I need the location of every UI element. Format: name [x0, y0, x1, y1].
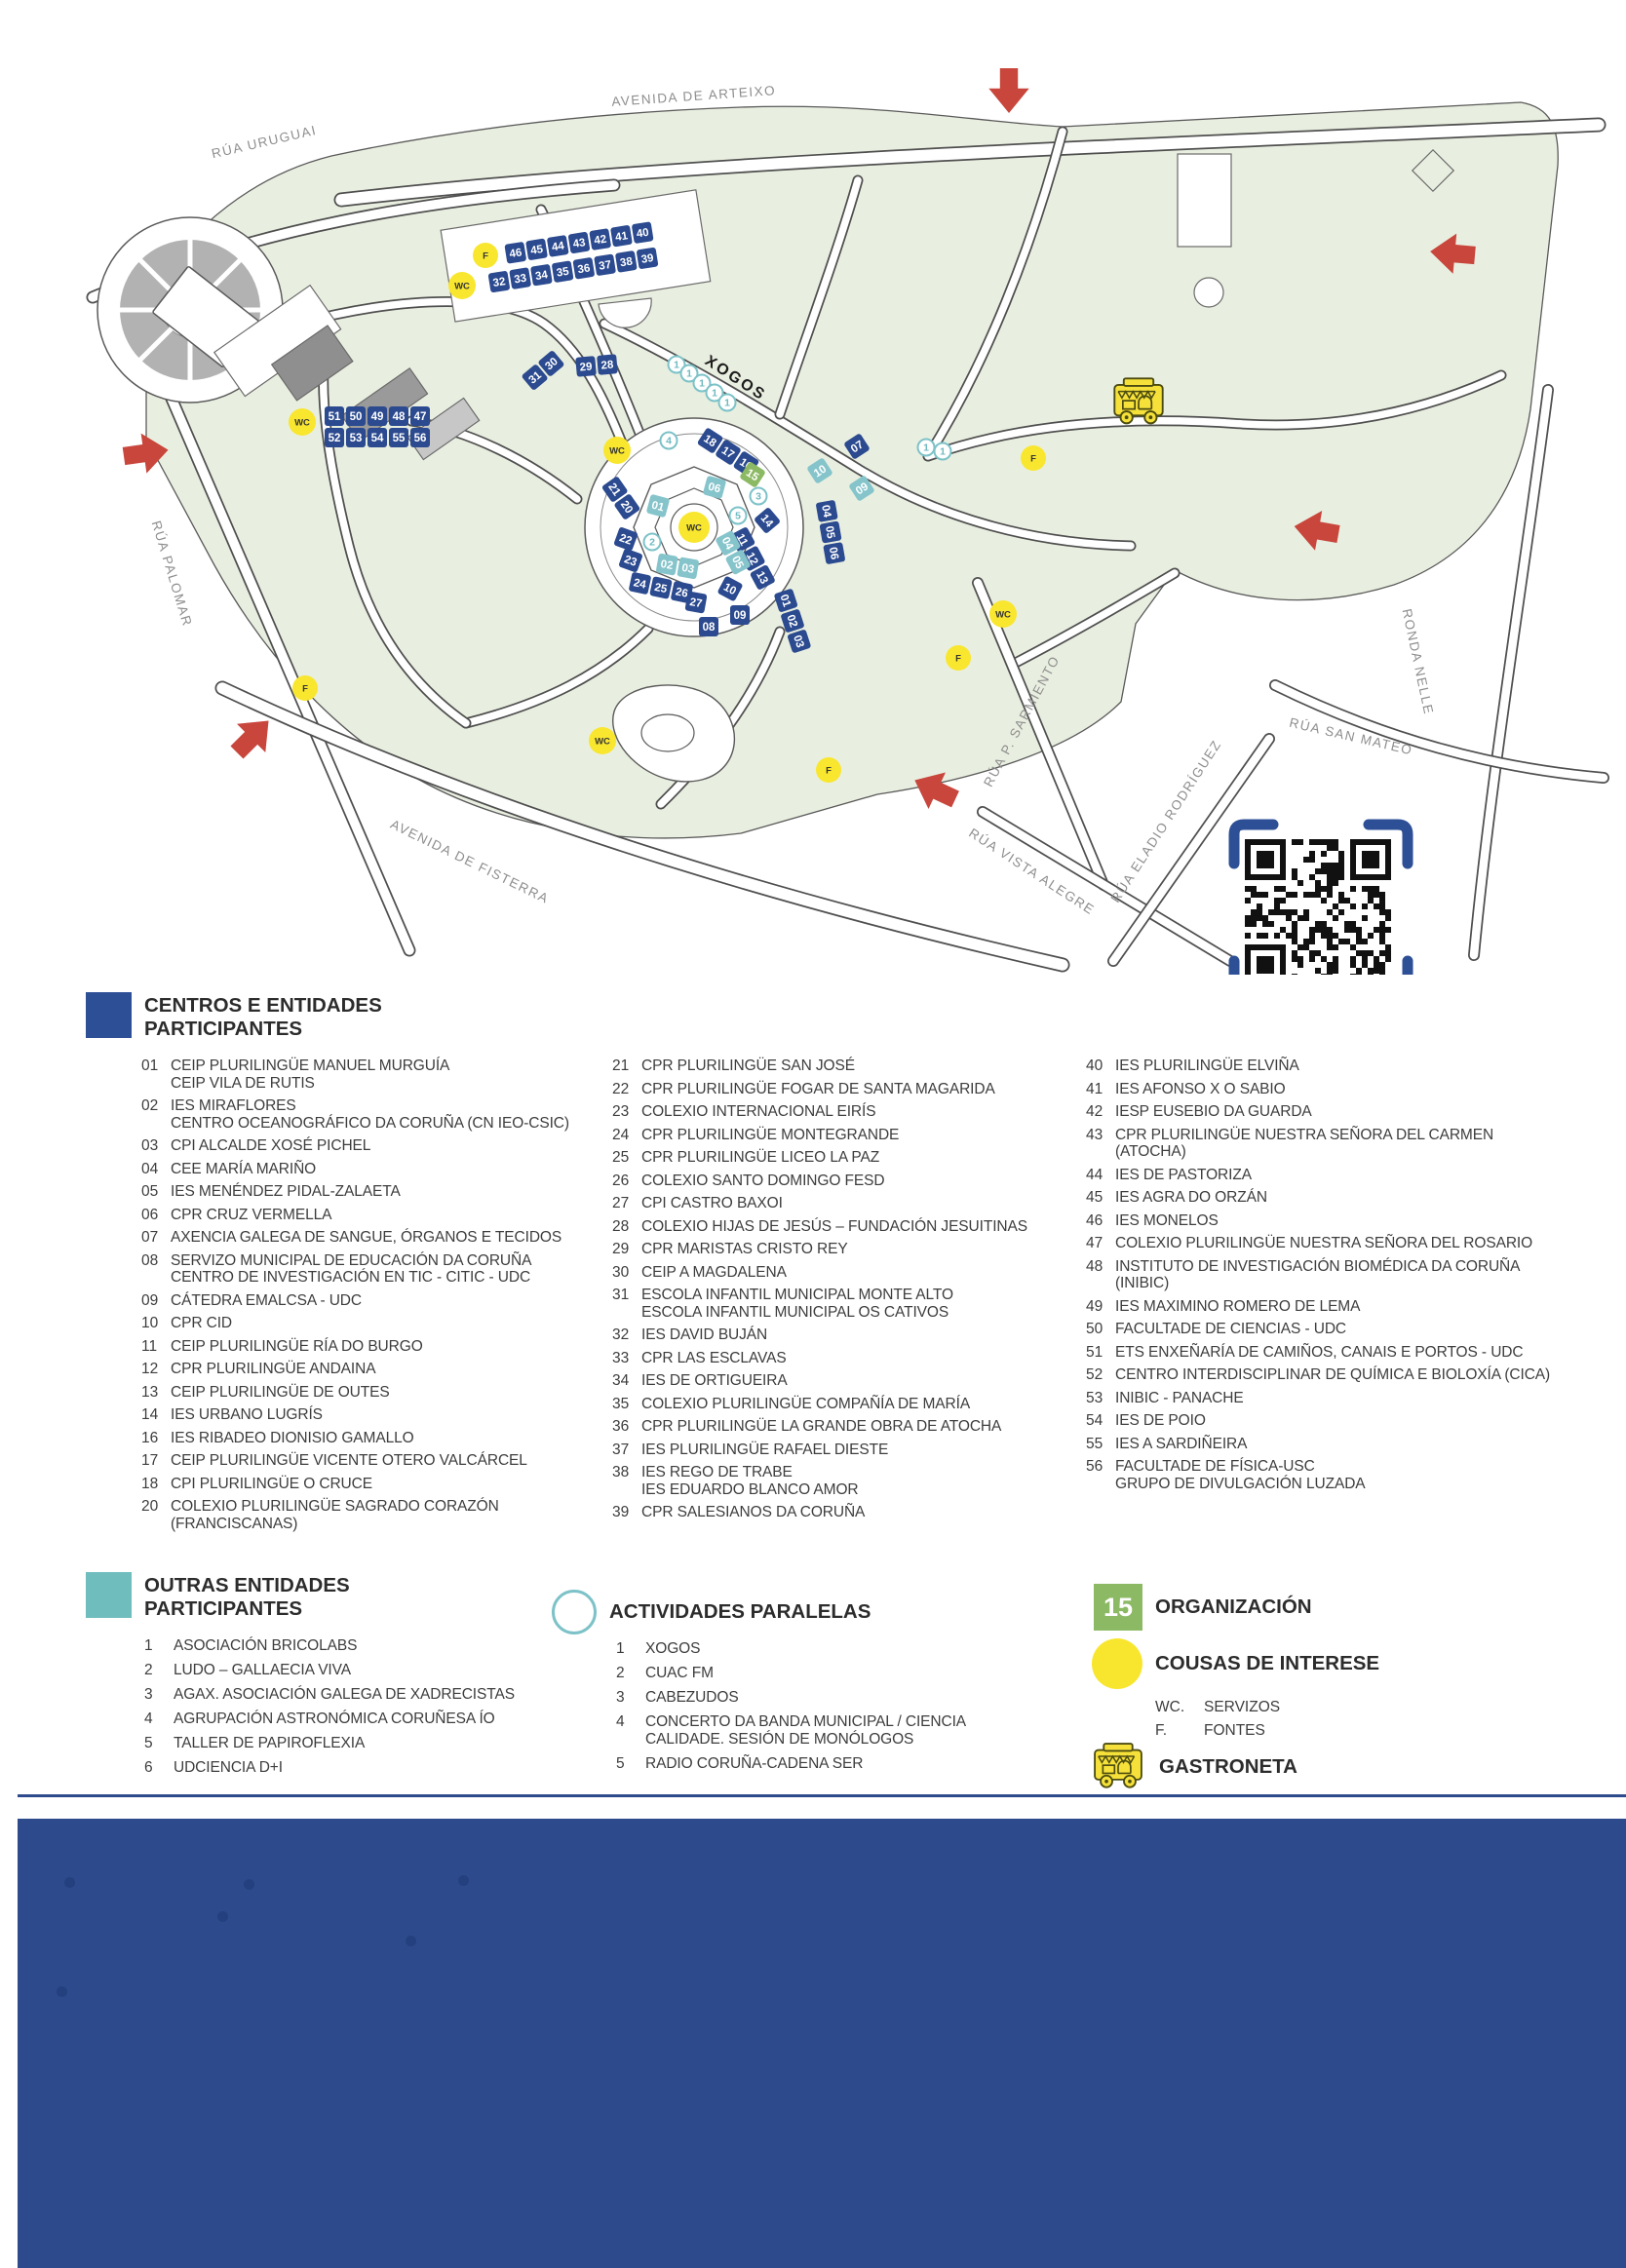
legend-item-number: 01	[141, 1057, 171, 1092]
legend-item-line: IES DAVID BUJÁN	[641, 1326, 767, 1344]
qr-module	[1292, 974, 1297, 975]
qr-module	[1385, 927, 1391, 933]
legend-item-text: CEIP PLURILINGÜE VICENTE OTERO VALCÁRCEL	[171, 1452, 527, 1470]
legend-item-text: CEIP PLURILINGÜE MANUEL MURGUÍACEIP VILA…	[171, 1057, 449, 1092]
legend-item-line: IES EDUARDO BLANCO AMOR	[641, 1481, 859, 1499]
qr-module	[1245, 921, 1251, 927]
legend-item-number: 45	[1086, 1189, 1115, 1207]
interest-label: WC	[609, 446, 625, 457]
legend-item-number: 33	[612, 1350, 641, 1367]
activity-number: 1	[686, 368, 692, 380]
qr-module	[1338, 898, 1344, 903]
activity-number: 1	[724, 398, 730, 409]
legend-item: 14IES URBANO LUGRÍS	[141, 1406, 609, 1424]
legend-item: 46IES MONELOS	[1086, 1212, 1617, 1230]
map-marker-number: 28	[600, 359, 614, 371]
legend-item-number: 5	[144, 1735, 174, 1752]
legend-item: 06CPR CRUZ VERMELLA	[141, 1207, 609, 1224]
cousas-f-label: FONTES	[1204, 1719, 1265, 1743]
qr-module	[1274, 933, 1280, 939]
legend-item-line: CÁTEDRA EMALCSA - UDC	[171, 1292, 362, 1310]
legend-item-number: 36	[612, 1418, 641, 1436]
activity-number: 2	[649, 537, 655, 549]
qr-module	[1344, 921, 1350, 927]
legend-item-line: COLEXIO SANTO DOMINGO FESD	[641, 1172, 884, 1190]
qr-module	[1280, 909, 1286, 915]
legend-item-number: 3	[144, 1686, 174, 1704]
legend-item: 25CPR PLURILINGÜE LICEO LA PAZ	[612, 1149, 1085, 1167]
qr-module	[1333, 845, 1338, 851]
qr-module	[1309, 892, 1315, 898]
legend-item-text: FACULTADE DE FÍSICA-USCGRUPO DE DIVULGAC…	[1115, 1458, 1366, 1492]
qr-module	[1315, 839, 1321, 845]
legend-item: 54IES DE POIO	[1086, 1412, 1617, 1430]
truck-roof	[1103, 1744, 1132, 1750]
map-marker-number: 45	[529, 244, 544, 257]
legend-item-text: CPR CRUZ VERMELLA	[171, 1207, 331, 1224]
legend-item-number: 2	[616, 1665, 645, 1682]
qr-module	[1333, 968, 1338, 974]
street-label: RÚA PALOMAR	[149, 519, 195, 628]
legend-item-line: IES MIRAFLORES	[171, 1097, 569, 1115]
street-label: AVENIDA DE FISTERRA	[388, 817, 551, 906]
qr-module	[1327, 939, 1333, 944]
legend-item-number: 21	[612, 1057, 641, 1075]
map-marker-number: 38	[619, 255, 634, 269]
legend-item-text: CONCERTO DA BANDA MUNICIPAL / CIENCIACAL…	[645, 1713, 966, 1748]
logo-dot	[458, 1875, 469, 1886]
interest-label: WC	[294, 418, 310, 429]
activity-ring-marker: 2	[644, 534, 661, 551]
qr-module	[1303, 892, 1309, 898]
qr-module	[1338, 892, 1344, 898]
legend-item-number: 37	[612, 1442, 641, 1459]
map-marker-number: 08	[703, 622, 716, 634]
qr-module	[1251, 921, 1257, 927]
qr-module	[1379, 898, 1385, 903]
qr-module	[1257, 933, 1262, 939]
legend-item-line: CPR CRUZ VERMELLA	[171, 1207, 331, 1224]
legend-item: 29CPR MARISTAS CRISTO REY	[612, 1241, 1085, 1258]
footer-band: DCR '23 06.05.23 11-19h Plano situación …	[18, 1819, 1626, 2268]
food-truck-icon	[1090, 1743, 1146, 1791]
legend-item: 47COLEXIO PLURILINGÜE NUESTRA SEÑORA DEL…	[1086, 1235, 1617, 1252]
interest-label: WC	[595, 737, 610, 748]
qr-module	[1274, 886, 1280, 892]
legend-item-line: CPR PLURILINGÜE LICEO LA PAZ	[641, 1149, 879, 1167]
map-marker-number: 03	[680, 562, 695, 576]
legend-item-text: COLEXIO HIJAS DE JESÚS – FUNDACIÓN JESUI…	[641, 1218, 1027, 1236]
legend-item-number: 1	[616, 1640, 645, 1658]
legend-item-line: COLEXIO INTERNACIONAL EIRÍS	[641, 1103, 875, 1121]
qr-module	[1321, 863, 1327, 868]
actividades-title: ACTIVIDADES PARALELAS	[609, 1600, 871, 1624]
legend-item: 51ETS ENXEÑARÍA DE CAMIÑOS, CANAIS E POR…	[1086, 1344, 1617, 1362]
legend-item: 03CPI ALCALDE XOSÉ PICHEL	[141, 1137, 609, 1155]
legend-item-number: 02	[141, 1097, 171, 1132]
legend-item-text: CPR PLURILINGÜE LICEO LA PAZ	[641, 1149, 879, 1167]
legend-item-line: IES REGO DE TRABE	[641, 1464, 859, 1481]
legend-item-number: 10	[141, 1315, 171, 1332]
legend-item: 39CPR SALESIANOS DA CORUÑA	[612, 1504, 1085, 1521]
qr-module	[1368, 898, 1374, 903]
qr-module	[1338, 857, 1344, 863]
qr-module	[1362, 915, 1368, 921]
legend-item-number: 50	[1086, 1321, 1115, 1338]
qr-module	[1257, 892, 1262, 898]
logo-dot	[406, 1936, 416, 1946]
legend-item: 30CEIP A MAGDALENA	[612, 1264, 1085, 1282]
legend-item-line: INIBIC - PANACHE	[1115, 1390, 1244, 1407]
qr-module	[1344, 927, 1350, 933]
qr-module	[1280, 886, 1286, 892]
qr-module	[1257, 903, 1262, 909]
map-marker-number: 40	[636, 227, 650, 241]
entrance-arrow-icon	[988, 68, 1028, 113]
legend-item-text: CEIP PLURILINGÜE DE OUTES	[171, 1384, 390, 1402]
actividades-list: 1XOGOS2CUAC FM3CABEZUDOS4CONCERTO DA BAN…	[616, 1640, 1045, 1780]
legend-item-line: CPR LAS ESCLAVAS	[641, 1350, 787, 1367]
legend-item-line: XOGOS	[645, 1640, 700, 1658]
qr-module	[1327, 874, 1333, 880]
legend-item: 34IES DE ORTIGUEIRA	[612, 1372, 1085, 1390]
logo-dot	[57, 1986, 67, 1997]
qr-module	[1257, 909, 1262, 915]
qr-module	[1309, 839, 1315, 845]
qr-module	[1315, 886, 1321, 892]
legend-item-text: CPI PLURILINGÜE O CRUCE	[171, 1476, 372, 1493]
legend-item-number: 13	[141, 1384, 171, 1402]
legend-item-line: TALLER DE PAPIROFLEXIA	[174, 1735, 365, 1752]
qr-module	[1251, 892, 1257, 898]
legend-item-number: 56	[1086, 1458, 1115, 1492]
qr-module	[1321, 851, 1327, 857]
qr-module	[1286, 915, 1292, 921]
qr-module	[1292, 956, 1297, 962]
qr-module	[1292, 939, 1297, 944]
qr-module	[1374, 927, 1379, 933]
legend-item-number: 39	[612, 1504, 641, 1521]
legend-item: 35COLEXIO PLURILINGÜE COMPAÑÍA DE MARÍA	[612, 1396, 1085, 1413]
qr-module	[1257, 915, 1262, 921]
interest-point: WC	[989, 600, 1017, 628]
legend-item-text: CPR PLURILINGÜE NUESTRA SEÑORA DEL CARME…	[1115, 1127, 1493, 1161]
legend-item: 40IES PLURILINGÜE ELVIÑA	[1086, 1057, 1617, 1075]
map-marker-number: 02	[660, 558, 675, 572]
legend-item-number: 35	[612, 1396, 641, 1413]
qr-module	[1262, 933, 1268, 939]
legend-item-line: FACULTADE DE FÍSICA-USC	[1115, 1458, 1366, 1476]
qr-module	[1321, 839, 1327, 845]
legend-item-text: IES DE POIO	[1115, 1412, 1206, 1430]
legend-item-line: IES PLURILINGÜE ELVIÑA	[1115, 1057, 1299, 1075]
qr-module	[1350, 956, 1356, 962]
activity-ring-marker: 4	[661, 433, 677, 449]
map-marker-number: 56	[414, 433, 427, 444]
qr-module	[1251, 909, 1257, 915]
centros-header: CENTROS E ENTIDADES PARTICIPANTES	[86, 992, 382, 1041]
interest-label: F	[955, 654, 961, 665]
qr-module	[1315, 892, 1321, 898]
legend-item-line: ESCOLA INFANTIL MUNICIPAL MONTE ALTO	[641, 1287, 953, 1304]
legend-item: 13CEIP PLURILINGÜE DE OUTES	[141, 1384, 609, 1402]
qr-module	[1379, 909, 1385, 915]
gastroneta-legend-icon	[1095, 1744, 1142, 1787]
qr-module	[1315, 927, 1321, 933]
legend-item: 05IES MENÉNDEZ PIDAL-ZALAETA	[141, 1183, 609, 1201]
legend-item-number: 40	[1086, 1057, 1115, 1075]
legend-item-text: XOGOS	[645, 1640, 700, 1658]
legend-item-number: 22	[612, 1081, 641, 1098]
activity-number: 1	[699, 378, 705, 390]
legend-item-text: CABEZUDOS	[645, 1689, 739, 1707]
qr-module	[1374, 968, 1379, 974]
qr-module	[1286, 892, 1292, 898]
legend-item-number: 53	[1086, 1390, 1115, 1407]
qr-module	[1350, 962, 1356, 968]
centros-title-line2: PARTICIPANTES	[144, 1018, 382, 1041]
legend-item-number: 43	[1086, 1127, 1115, 1161]
qr-module	[1297, 915, 1303, 921]
interest-label: F	[483, 251, 488, 262]
qr-module	[1274, 909, 1280, 915]
map-marker-group: 09	[730, 605, 750, 625]
qr-module	[1362, 886, 1368, 892]
legend-item-line: IES DE PASTORIZA	[1115, 1167, 1252, 1184]
qr-module	[1344, 898, 1350, 903]
legend-item-line: ASOCIACIÓN BRICOLABS	[174, 1637, 357, 1655]
qr-module	[1333, 903, 1338, 909]
activity-ring-marker: 1	[935, 443, 951, 460]
qr-module	[1309, 851, 1315, 857]
qr-module	[1333, 933, 1338, 939]
legend-item-number: 26	[612, 1172, 641, 1190]
legend-item-number: 03	[141, 1137, 171, 1155]
legend-item-number: 46	[1086, 1212, 1115, 1230]
qr-module	[1350, 974, 1356, 975]
qr-module	[1379, 933, 1385, 939]
legend-item-line: CENTRO OCEANOGRÁFICO DA CORUÑA (CN IEO-C…	[171, 1115, 569, 1133]
qr-module	[1379, 950, 1385, 956]
legend-item-text: IES A SARDIÑEIRA	[1115, 1436, 1247, 1453]
legend-item-text: CENTRO INTERDISCIPLINAR DE QUÍMICA E BIO…	[1115, 1366, 1550, 1384]
map-marker-number: 48	[393, 411, 406, 423]
qr-module	[1309, 956, 1315, 962]
qr-module	[1303, 915, 1309, 921]
qr-module	[1297, 956, 1303, 962]
qr-module	[1327, 863, 1333, 868]
legend-item-text: LUDO – GALLAECIA VIVA	[174, 1662, 351, 1679]
qr-module	[1292, 921, 1297, 927]
qr-module	[1286, 933, 1292, 939]
legend-item: 41IES AFONSO X O SABIO	[1086, 1081, 1617, 1098]
legend-item-line: IES MONELOS	[1115, 1212, 1219, 1230]
legend-item-line: LUDO – GALLAECIA VIVA	[174, 1662, 351, 1679]
qr-module	[1292, 950, 1297, 956]
legend-item-line: AGAX. ASOCIACIÓN GALEGA DE XADRECISTAS	[174, 1686, 515, 1704]
qr-module	[1368, 968, 1374, 974]
legend-item: 27CPI CASTRO BAXOI	[612, 1195, 1085, 1212]
legend-item-text: COLEXIO INTERNACIONAL EIRÍS	[641, 1103, 875, 1121]
legend-item-number: 47	[1086, 1235, 1115, 1252]
map-marker-number: 49	[371, 411, 384, 423]
legend-item-number: 17	[141, 1452, 171, 1470]
legend-item: 2CUAC FM	[616, 1665, 1045, 1682]
legend-item: 21CPR PLURILINGÜE SAN JOSÉ	[612, 1057, 1085, 1075]
qr-module	[1333, 839, 1338, 845]
qr-module	[1309, 927, 1315, 933]
legend-item-number: 1	[144, 1637, 174, 1655]
legend-item-text: COLEXIO PLURILINGÜE SAGRADO CORAZÓN(FRAN…	[171, 1498, 499, 1532]
legend-item-text: IES AGRA DO ORZÁN	[1115, 1189, 1267, 1207]
qr-module	[1333, 874, 1338, 880]
truck-roof	[1124, 378, 1153, 386]
qr-module	[1315, 880, 1321, 886]
qr-module	[1315, 921, 1321, 927]
map-marker-number: 41	[614, 230, 629, 244]
legend-item-line: ESCOLA INFANTIL MUNICIPAL OS CATIVOS	[641, 1304, 953, 1322]
interest-point: F	[473, 243, 498, 268]
legend-item-line: CPI PLURILINGÜE O CRUCE	[171, 1476, 372, 1493]
legend-item: 17CEIP PLURILINGÜE VICENTE OTERO VALCÁRC…	[141, 1452, 609, 1470]
legend-item: 3AGAX. ASOCIACIÓN GALEGA DE XADRECISTAS	[144, 1686, 563, 1704]
qr-module	[1315, 868, 1321, 874]
legend-item-text: ESCOLA INFANTIL MUNICIPAL MONTE ALTOESCO…	[641, 1287, 953, 1321]
qr-module	[1292, 892, 1297, 898]
legend-item-line: ETS ENXEÑARÍA DE CAMIÑOS, CANAIS E PORTO…	[1115, 1344, 1523, 1362]
interest-point: F	[946, 645, 971, 671]
legend-item: 23COLEXIO INTERNACIONAL EIRÍS	[612, 1103, 1085, 1121]
interest-point: F	[1021, 445, 1046, 471]
qr-module	[1385, 944, 1391, 950]
interest-label: WC	[686, 523, 702, 534]
map-marker-number: 52	[329, 433, 341, 444]
qr-module	[1327, 886, 1333, 892]
legend-item-line: CEIP VILA DE RUTIS	[171, 1075, 449, 1093]
legend-item-line: IES A SARDIÑEIRA	[1115, 1436, 1247, 1453]
qr-code	[1234, 825, 1408, 975]
legend-item-line: CPR CID	[171, 1315, 232, 1332]
legend-item: 55IES A SARDIÑEIRA	[1086, 1436, 1617, 1453]
legend-item-text: CPR MARISTAS CRISTO REY	[641, 1241, 848, 1258]
legend-item-number: 04	[141, 1161, 171, 1178]
centros-column-3: 40IES PLURILINGÜE ELVIÑA41IES AFONSO X O…	[1086, 1057, 1617, 1498]
truck-hub	[1128, 1780, 1132, 1784]
legend-item-line: IES URBANO LUGRÍS	[171, 1406, 323, 1424]
qr-module	[1362, 962, 1368, 968]
legend-item-text: IESP EUSEBIO DA GUARDA	[1115, 1103, 1312, 1121]
interest-point: WC	[289, 408, 316, 436]
activity-number: 1	[923, 442, 929, 454]
qr-module	[1362, 956, 1368, 962]
interest-point: WC	[678, 512, 710, 543]
activity-ring-marker: 1	[719, 395, 736, 411]
legend-item-number: 07	[141, 1229, 171, 1247]
legend-item-text: CEIP PLURILINGÜE RÍA DO BURGO	[171, 1338, 423, 1356]
legend-item-number: 38	[612, 1464, 641, 1498]
legend-item-line: CONCERTO DA BANDA MUNICIPAL / CIENCIA	[645, 1713, 966, 1731]
map-marker-number: 55	[393, 433, 406, 444]
map-marker-number: 50	[350, 411, 363, 423]
qr-module	[1379, 921, 1385, 927]
map-marker-number: 39	[640, 252, 655, 266]
qr-module	[1262, 915, 1268, 921]
legend-item: 1ASOCIACIÓN BRICOLABS	[144, 1637, 563, 1655]
legend-item-line: CPI ALCALDE XOSÉ PICHEL	[171, 1137, 370, 1155]
street-label: RONDA NELLE	[1400, 607, 1437, 716]
qr-module	[1280, 898, 1286, 903]
interest-point: F	[816, 757, 841, 783]
map-marker-number: 47	[414, 411, 427, 423]
qr-module	[1368, 933, 1374, 939]
qr-module	[1245, 915, 1251, 921]
park-map: RÚA URUGUAIAVENIDA DE ARTEIXORÚA PALOMAR…	[0, 0, 1626, 975]
qr-module	[1379, 968, 1385, 974]
legend-item-text: UDCIENCIA D+I	[174, 1759, 283, 1777]
qr-module	[1321, 898, 1327, 903]
map-marker-number: 27	[688, 596, 703, 610]
qr-module	[1327, 974, 1333, 975]
qr-module	[1327, 909, 1333, 915]
cousas-row: COUSAS DE INTERESE	[1092, 1638, 1379, 1689]
map-marker-number: 46	[509, 247, 523, 260]
legend-item-text: IES AFONSO X O SABIO	[1115, 1081, 1286, 1098]
legend-item-text: AGRUPACIÓN ASTRONÓMICA CORUÑESA ÍO	[174, 1711, 495, 1728]
legend-item-line: CEIP PLURILINGÜE VICENTE OTERO VALCÁRCEL	[171, 1452, 527, 1470]
truck-hub	[1125, 415, 1129, 419]
qr-module	[1356, 950, 1362, 956]
legend-item: 07AXENCIA GALEGA DE SANGUE, ÓRGANOS E TE…	[141, 1229, 609, 1247]
legend-item-text: TALLER DE PAPIROFLEXIA	[174, 1735, 365, 1752]
map-marker-number: 32	[492, 276, 507, 289]
legend-item-text: CPR PLURILINGÜE FOGAR DE SANTA MAGARIDA	[641, 1081, 995, 1098]
legend-item-text: AXENCIA GALEGA DE SANGUE, ÓRGANOS E TECI…	[171, 1229, 561, 1247]
legend-item-text: CPR PLURILINGÜE SAN JOSÉ	[641, 1057, 855, 1075]
legend-item: 18CPI PLURILINGÜE O CRUCE	[141, 1476, 609, 1493]
legend-item: 26COLEXIO SANTO DOMINGO FESD	[612, 1172, 1085, 1190]
legend-item: 48INSTITUTO DE INVESTIGACIÓN BIOMÉDICA D…	[1086, 1258, 1617, 1292]
legend-item: 12CPR PLURILINGÜE ANDAINA	[141, 1361, 609, 1378]
legend-item-number: 48	[1086, 1258, 1115, 1292]
qr-module	[1350, 921, 1356, 927]
qr-module	[1327, 944, 1333, 950]
qr-module	[1356, 968, 1362, 974]
qr-module	[1344, 939, 1350, 944]
qr-module	[1321, 933, 1327, 939]
legend-item-line: CEIP PLURILINGÜE DE OUTES	[171, 1384, 390, 1402]
map-marker-group: 27	[684, 591, 707, 613]
qr-module	[1309, 874, 1315, 880]
legend-item-text: COLEXIO PLURILINGÜE NUESTRA SEÑORA DEL R…	[1115, 1235, 1532, 1252]
qr-module	[1327, 968, 1333, 974]
map-marker-group: 5150494847	[325, 406, 430, 426]
activity-number: 5	[735, 511, 741, 522]
legend-item-number: 08	[141, 1252, 171, 1287]
legend-item-line: (FRANCISCANAS)	[171, 1516, 499, 1533]
logo-dot	[64, 1877, 75, 1888]
interest-point: WC	[603, 437, 631, 464]
centros-column-1: 01CEIP PLURILINGÜE MANUEL MURGUÍACEIP VI…	[141, 1057, 609, 1538]
legend-item-text: ETS ENXEÑARÍA DE CAMIÑOS, CANAIS E PORTO…	[1115, 1344, 1523, 1362]
legend-item-line: INSTITUTO DE INVESTIGACIÓN BIOMÉDICA DA …	[1115, 1258, 1520, 1276]
legend-item-text: IES REGO DE TRABEIES EDUARDO BLANCO AMOR	[641, 1464, 859, 1498]
legend-item: 5TALLER DE PAPIROFLEXIA	[144, 1735, 563, 1752]
road-surface	[983, 812, 1230, 961]
qr-module	[1297, 880, 1303, 886]
legend-item-text: IES DE PASTORIZA	[1115, 1167, 1252, 1184]
legend-item: 2LUDO – GALLAECIA VIVA	[144, 1662, 563, 1679]
truck-hub	[1148, 415, 1152, 419]
